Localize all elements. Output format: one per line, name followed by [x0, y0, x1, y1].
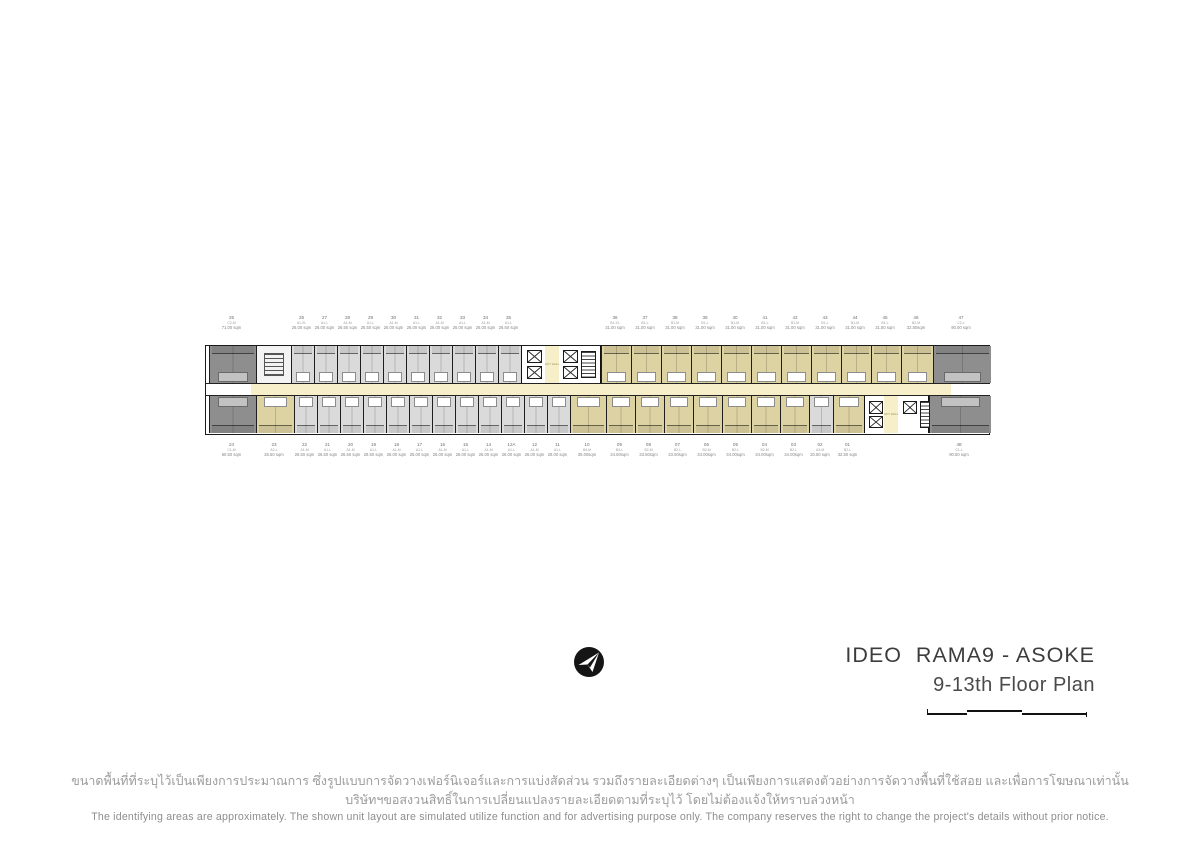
unit-size: 31.00 sqm: [785, 325, 805, 330]
scale-bar: [927, 709, 1087, 718]
unit-33: [452, 346, 475, 383]
unit-label: 31A1-L26.00 sqm: [407, 315, 427, 330]
unit-30: [383, 346, 406, 383]
unit-38: [661, 346, 691, 383]
ananda-logo-icon: [573, 646, 605, 678]
unit-12A: [501, 396, 524, 433]
building-strip: LIFT HALL LIFT HALL: [205, 345, 990, 435]
unit-label: 19A1-L26.50 sqm: [364, 442, 384, 457]
unit-size: 26.50 sqm: [295, 452, 315, 457]
unit-05: [722, 396, 751, 433]
unit-43: [811, 346, 841, 383]
unit-11: [547, 396, 570, 433]
unit-17: [409, 396, 432, 433]
stair: [581, 351, 596, 378]
unit-22: [294, 396, 317, 433]
unit-size: 26.00 sqm: [407, 325, 427, 330]
unit-size: 31.00 sqm: [695, 325, 715, 330]
lift-shaft: [563, 366, 578, 379]
unit-45: [871, 346, 901, 383]
floor-plan: 25C2-M71.00 sqm26A1-XL26.00 sqm27A1-L26.…: [205, 315, 990, 465]
unit-24: [209, 396, 256, 433]
unit-size: 31.00 sqm: [755, 325, 775, 330]
unit-26: [291, 346, 314, 383]
lift-core: LIFT HALL: [521, 346, 601, 383]
unit-size: 26.00 sqm: [456, 452, 476, 457]
unit-label: 11A1-L26.00 sqm: [548, 442, 568, 457]
unit-size: 34.00sqm: [697, 452, 715, 457]
lift-shaft: [869, 416, 883, 428]
project-title: IDEO RAMA9 - ASOKE: [845, 643, 1095, 668]
unit-label: 43B1-L31.00 sqm: [815, 315, 835, 330]
unit-label: 34A1-M26.00 sqm: [476, 315, 496, 330]
lift-core: LIFT HALL: [864, 396, 929, 433]
unit-size: 26.50 sqm: [341, 452, 361, 457]
unit-label: 10B4-M36.00sqm: [578, 442, 596, 457]
unit-44: [841, 346, 871, 383]
unit-label: 27A1-L26.00 sqm: [315, 315, 335, 330]
unit-label: 40B1-M31.00 sqm: [725, 315, 745, 330]
corridor-segment: [251, 384, 951, 395]
unit-label: 04B2-M34.00sqm: [755, 442, 773, 457]
unit-size: 26.00 sqm: [433, 452, 453, 457]
unit-label: 26A1-XL26.00 sqm: [292, 315, 312, 330]
unit-36: [601, 346, 631, 383]
unit-size: 26.00 sqm: [430, 325, 450, 330]
unit-size: 26.00 sqm: [525, 452, 545, 457]
unit-label: 08B2-M33.50sqm: [639, 442, 657, 457]
unit-size: 31.00 sqm: [725, 325, 745, 330]
unit-size: 26.00 sqm: [410, 452, 430, 457]
unit-size: 32.50 sqm: [838, 452, 858, 457]
unit-size: 26.00 sqm: [292, 325, 312, 330]
unit-32: [429, 346, 452, 383]
unit-size: 31.00 sqm: [665, 325, 685, 330]
unit-label: 09B3-L34.50sqm: [610, 442, 628, 457]
unit-48: [929, 396, 991, 433]
unit-19: [363, 396, 386, 433]
unit-label: 38B1-M31.00 sqm: [665, 315, 685, 330]
unit-label: 48C1-L90.50 sqm: [949, 442, 969, 457]
unit-18: [386, 396, 409, 433]
unit-size: 26.50 sqm: [361, 325, 381, 330]
unit-25: [209, 346, 256, 383]
unit-size: 34.00sqm: [726, 452, 744, 457]
unit-size: 31.00 sqm: [815, 325, 835, 330]
unit-row-top: LIFT HALL: [206, 346, 989, 383]
unit-label: 17A1-L26.00 sqm: [410, 442, 430, 457]
lift-shaft: [869, 401, 883, 414]
unit-07: [664, 396, 693, 433]
unit-label: 45B1-L31.50 sqm: [875, 315, 895, 330]
unit-label: 01B2-L32.50 sqm: [838, 442, 858, 457]
lift-shaft: [527, 350, 542, 363]
unit-size: 90.00 sqm: [951, 325, 971, 330]
lift-hall: LIFT HALL: [884, 396, 898, 433]
unit-size: 26.00 sqm: [453, 325, 473, 330]
unit-label: 37B1-L31.00 sqm: [635, 315, 655, 330]
unit-label: 44B1-M31.00 sqm: [845, 315, 865, 330]
unit-15: [455, 396, 478, 433]
unit-label: 06B2-M34.00sqm: [697, 442, 715, 457]
unit-label: 24C1-M60.50 sqm: [222, 442, 242, 457]
unit-size: 33.50sqm: [639, 452, 657, 457]
unit-size: 26.00 sqm: [502, 452, 522, 457]
title-block: IDEO RAMA9 - ASOKE 9-13th Floor Plan: [845, 643, 1095, 697]
unit-size: 26.00 sqm: [387, 452, 407, 457]
unit-label: 39B1-L31.00 sqm: [695, 315, 715, 330]
unit-label: 02A3-M20.50 sqm: [810, 442, 830, 457]
unit-size: 26.50 sqm: [499, 325, 519, 330]
lift-hall-label: LIFT HALL: [545, 363, 559, 366]
unit-28: [337, 346, 360, 383]
unit-label: 25C2-M71.00 sqm: [222, 315, 242, 330]
unit-size: 34.00sqm: [784, 452, 802, 457]
unit-23: [256, 396, 294, 433]
unit-label: 14A1-M26.00 sqm: [479, 442, 499, 457]
unit-27: [314, 346, 337, 383]
unit-47: [933, 346, 991, 383]
unit-label: 33A1-L26.00 sqm: [453, 315, 473, 330]
unit-02: [809, 396, 833, 433]
unit-label: 15A1-L26.00 sqm: [456, 442, 476, 457]
unit-size: 90.50 sqm: [949, 452, 969, 457]
floor-plan-title: 9-13th Floor Plan: [845, 674, 1095, 697]
unit-41: [751, 346, 781, 383]
unit-label: 22A1-M26.50 sqm: [295, 442, 315, 457]
unit-size: 26.50 sqm: [338, 325, 358, 330]
unit-label: 07B2-L33.50sqm: [668, 442, 686, 457]
disclaimer-english: The identifying areas are approximately.…: [0, 811, 1200, 823]
unit-16: [432, 396, 455, 433]
unit-06: [693, 396, 722, 433]
unit-04: [751, 396, 780, 433]
unit-size: 31.50 sqm: [875, 325, 895, 330]
unit-size: 26.50 sqm: [364, 452, 384, 457]
unit-size: 71.00 sqm: [222, 325, 242, 330]
unit-42: [781, 346, 811, 383]
unit-label: 16A1-M26.00 sqm: [433, 442, 453, 457]
unit-37: [631, 346, 661, 383]
unit-size: 36.00sqm: [578, 452, 596, 457]
unit-size: 26.00 sqm: [548, 452, 568, 457]
unit-size: 26.00 sqm: [315, 325, 335, 330]
central-corridor: [206, 383, 989, 396]
unit-label: 03B2-L34.00sqm: [784, 442, 802, 457]
unit-size: 26.00 sqm: [384, 325, 404, 330]
unit-label: 18A1-M26.00 sqm: [387, 442, 407, 457]
unit-39: [691, 346, 721, 383]
unit-34: [475, 346, 498, 383]
unit-21: [317, 396, 340, 433]
unit-09: [606, 396, 635, 433]
unit-size: 31.00 sqm: [635, 325, 655, 330]
unit-label: 47C2-L90.00 sqm: [951, 315, 971, 330]
unit-label: 12AA1-L26.00 sqm: [502, 442, 522, 457]
unit-size: 34.50sqm: [610, 452, 628, 457]
unit-01: [833, 396, 864, 433]
unit-40: [721, 346, 751, 383]
unit-size: 60.50 sqm: [222, 452, 242, 457]
unit-label: 41B1-L31.00 sqm: [755, 315, 775, 330]
lift-shaft: [903, 401, 917, 414]
lift-hall: LIFT HALL: [545, 346, 559, 383]
unit-29: [360, 346, 383, 383]
unit-size: 26.50 sqm: [264, 452, 284, 457]
unit-08: [635, 396, 664, 433]
unit-size: 26.00 sqm: [476, 325, 496, 330]
unit-label: 36B1-XL31.00 sqm: [605, 315, 625, 330]
unit-label: 12A1-M26.00 sqm: [525, 442, 545, 457]
unit-label: 28A1-M26.50 sqm: [338, 315, 358, 330]
unit-label: 32A1-M26.00 sqm: [430, 315, 450, 330]
unit-size: 33.50sqm: [668, 452, 686, 457]
stair-service-room: [256, 346, 291, 383]
unit-label: 42B1-M31.00 sqm: [785, 315, 805, 330]
unit-size: 34.00sqm: [755, 452, 773, 457]
corridor-segment: [951, 384, 991, 395]
unit-12: [524, 396, 547, 433]
unit-label: 46B2-M32.50sqm: [907, 315, 925, 330]
lift-shaft: [563, 350, 578, 363]
unit-label: 35A1-L26.50 sqm: [499, 315, 519, 330]
unit-size: 26.50 sqm: [318, 452, 338, 457]
unit-label: 29A1-L26.50 sqm: [361, 315, 381, 330]
unit-size: 20.50 sqm: [810, 452, 830, 457]
lift-shaft: [527, 366, 542, 379]
unit-size: 26.00 sqm: [479, 452, 499, 457]
unit-label: 30A1-M26.00 sqm: [384, 315, 404, 330]
unit-14: [478, 396, 501, 433]
unit-label: 20A1-M26.50 sqm: [341, 442, 361, 457]
disclaimer-thai-line1: ขนาดพื้นที่ที่ระบุไว้เป็นเพียงการประมาณก…: [0, 771, 1200, 791]
unit-row-bottom: LIFT HALL: [206, 396, 989, 433]
disclaimer-thai-line2: บริษัทฯขอสงวนสิทธิ์ในการเปลี่ยนแปลงรายละ…: [0, 790, 1200, 810]
unit-label: 21A1-L26.50 sqm: [318, 442, 338, 457]
corridor-segment: [206, 384, 251, 395]
unit-size: 31.00 sqm: [605, 325, 625, 330]
unit-20: [340, 396, 363, 433]
unit-31: [406, 346, 429, 383]
unit-size: 31.00 sqm: [845, 325, 865, 330]
unit-size: 32.50sqm: [907, 325, 925, 330]
unit-03: [780, 396, 809, 433]
lift-hall-label: LIFT HALL: [884, 413, 898, 416]
unit-label: 05B2-L34.00sqm: [726, 442, 744, 457]
unit-46: [901, 346, 933, 383]
unit-10: [570, 396, 606, 433]
unit-label: 23A2-L26.50 sqm: [264, 442, 284, 457]
unit-35: [498, 346, 521, 383]
